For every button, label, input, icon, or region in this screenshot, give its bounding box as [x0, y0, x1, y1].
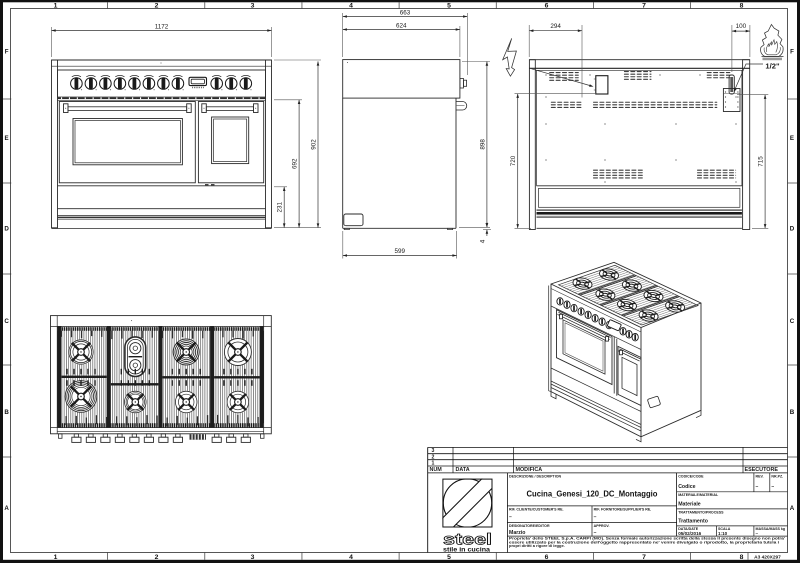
svg-text:720: 720 — [510, 155, 517, 166]
svg-text:1: 1 — [54, 3, 58, 10]
svg-text:3: 3 — [251, 3, 255, 10]
svg-text:A3 420X297: A3 420X297 — [754, 555, 781, 561]
svg-text:C: C — [4, 318, 9, 325]
svg-text:1: 1 — [54, 554, 58, 561]
svg-text:–: – — [594, 515, 597, 521]
svg-text:D: D — [4, 225, 9, 232]
svg-text:A: A — [790, 505, 795, 512]
svg-text:1/2": 1/2" — [765, 61, 780, 70]
svg-text:F: F — [790, 48, 794, 55]
svg-text:2: 2 — [155, 554, 159, 561]
svg-text:100: 100 — [736, 23, 747, 30]
svg-text:2: 2 — [432, 454, 435, 460]
svg-text:DESCRIZIONE / DESCRIPTION: DESCRIZIONE / DESCRIPTION — [509, 474, 562, 478]
svg-text:RIF. CLIENTE/CUSTOMER'S RE.: RIF. CLIENTE/CUSTOMER'S RE. — [509, 507, 564, 511]
svg-text:231: 231 — [277, 201, 284, 212]
svg-text:MASSA/MASS kg: MASSA/MASS kg — [756, 527, 786, 531]
svg-text:–: – — [771, 484, 774, 490]
svg-text:3: 3 — [432, 448, 435, 454]
svg-text:4: 4 — [349, 554, 353, 561]
svg-text:4: 4 — [479, 239, 486, 243]
svg-text:TRATTAMENTO/PROCESS: TRATTAMENTO/PROCESS — [678, 510, 724, 514]
svg-text:E: E — [5, 135, 9, 142]
svg-text:5: 5 — [447, 3, 451, 10]
svg-text:5: 5 — [447, 554, 451, 561]
svg-text:MATERIALE/MATERIAL: MATERIALE/MATERIAL — [678, 493, 719, 497]
svg-text:DESIGNATORE/EDITOR: DESIGNATORE/EDITOR — [509, 524, 550, 528]
svg-text:RIF. FORNITORE/SUPPLIER'S RE.: RIF. FORNITORE/SUPPLIER'S RE. — [594, 507, 652, 511]
svg-text:Cucina_Genesi_120_DC_Montaggio: Cucina_Genesi_120_DC_Montaggio — [527, 490, 658, 499]
svg-text:stile in cucina: stile in cucina — [443, 547, 490, 554]
svg-text:NR.PZ.: NR.PZ. — [771, 474, 783, 478]
svg-text:898: 898 — [479, 139, 486, 150]
svg-text:D: D — [790, 225, 795, 232]
svg-text:3: 3 — [251, 554, 255, 561]
svg-text:F: F — [5, 48, 9, 55]
svg-text:C: C — [790, 318, 795, 325]
svg-text:2: 2 — [155, 3, 159, 10]
svg-text:1: 1 — [432, 461, 435, 467]
svg-text:NUM: NUM — [430, 467, 443, 473]
svg-text:4: 4 — [349, 3, 353, 10]
svg-text:7: 7 — [642, 554, 646, 561]
svg-text:294: 294 — [550, 23, 561, 30]
svg-text:6: 6 — [545, 3, 549, 10]
svg-text:Trattamento: Trattamento — [678, 519, 708, 525]
svg-text:A: A — [4, 505, 9, 512]
svg-text:APPROV.: APPROV. — [594, 524, 610, 528]
svg-text:CODICE/CODE: CODICE/CODE — [678, 474, 704, 478]
svg-text:599: 599 — [394, 248, 405, 255]
svg-text:7: 7 — [642, 3, 646, 10]
svg-text:Materiale: Materiale — [678, 502, 701, 508]
svg-text:–: – — [756, 484, 759, 490]
svg-text:REV.: REV. — [756, 474, 764, 478]
svg-text:propri diritti a rigore di leg: propri diritti a rigore di legge. — [509, 543, 565, 548]
svg-text:DATA: DATA — [456, 467, 470, 473]
svg-text:ESECUTORE: ESECUTORE — [745, 467, 779, 473]
svg-text:8: 8 — [740, 3, 744, 10]
svg-text:–: – — [509, 515, 512, 521]
svg-text:B: B — [4, 409, 9, 416]
svg-text:E: E — [790, 135, 794, 142]
svg-text:715: 715 — [758, 156, 765, 167]
svg-text:MODIFICA: MODIFICA — [516, 467, 543, 473]
svg-text:1172: 1172 — [155, 23, 169, 30]
svg-text:6: 6 — [545, 554, 549, 561]
svg-text:Codice: Codice — [678, 484, 695, 490]
svg-text:B: B — [790, 409, 795, 416]
svg-text:902: 902 — [311, 139, 318, 150]
svg-text:8: 8 — [740, 554, 744, 561]
svg-text:624: 624 — [396, 22, 407, 29]
svg-text:663: 663 — [400, 9, 411, 16]
svg-text:692: 692 — [292, 158, 299, 169]
